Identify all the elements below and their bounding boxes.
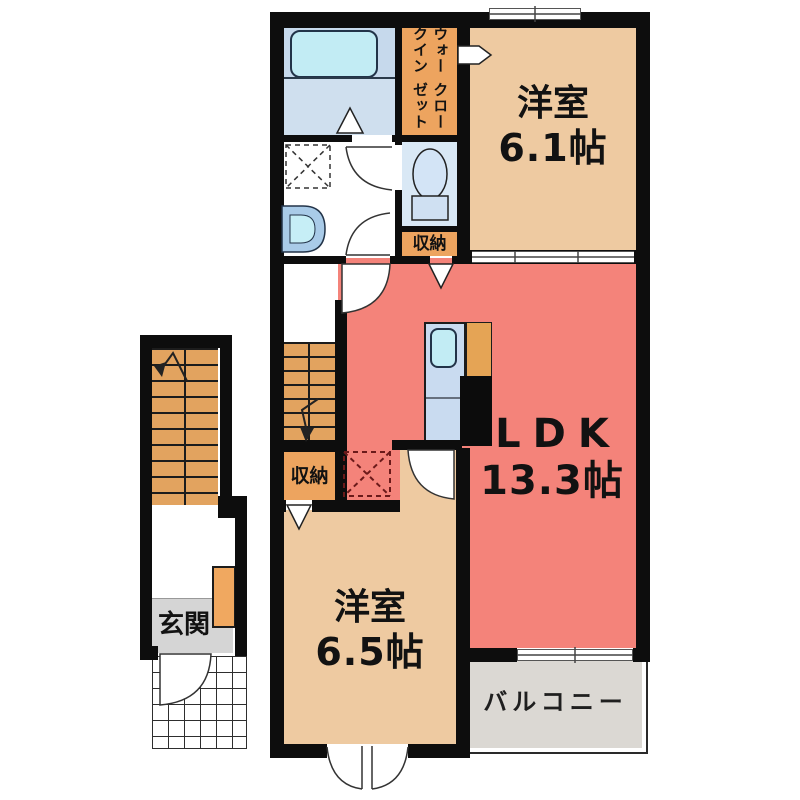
bedroom-bottom-name: 洋室: [334, 587, 406, 629]
wall: [270, 744, 327, 758]
walk-in-closet-line2: クローゼット: [410, 78, 451, 134]
kitchen-side-counter: [466, 322, 492, 378]
ldk-name: LDK: [483, 411, 621, 458]
wall: [140, 335, 232, 348]
wall: [270, 12, 284, 758]
entrance-label: 玄関: [152, 600, 216, 650]
wall: [457, 12, 470, 264]
bedroom-top-name: 洋室: [517, 83, 589, 125]
wall: [402, 135, 457, 142]
balcony-label: バルコニー: [469, 682, 642, 722]
kitchen-sink: [430, 328, 457, 368]
storage-upper-label: 収納: [402, 232, 457, 256]
internal-stairs-centerline: [308, 342, 310, 440]
bathroom-divider-line: [284, 77, 395, 79]
bathtub: [290, 30, 378, 78]
wall: [395, 12, 402, 145]
storage-lower-label: 収納: [284, 452, 335, 500]
bedroom-top-size: 6.1帖: [498, 126, 607, 171]
french-doors: [327, 746, 408, 789]
walk-in-closet-line1: ウォークイン: [410, 22, 451, 78]
wall: [220, 335, 232, 508]
wall: [335, 300, 347, 500]
wall: [140, 335, 152, 660]
bedroom-bottom-door-nook: [400, 448, 456, 510]
sliding-partition-bedroom-ldk: [472, 251, 634, 263]
floor-plan: 洋室 6.1帖 LDK 13.3帖 洋室 6.5帖 バルコニー 玄関 収納 収納…: [0, 0, 800, 800]
wall: [633, 648, 650, 662]
bedroom-bottom-label: 洋室 6.5帖: [284, 566, 456, 696]
wall: [284, 256, 346, 264]
washbasin: [282, 206, 325, 252]
washroom-door-arcs: [346, 147, 392, 255]
wall: [395, 190, 402, 258]
ldk-label: LDK 13.3帖: [458, 402, 646, 514]
wall: [392, 440, 462, 450]
toilet-room-floor: [402, 142, 457, 226]
outdoor-stairs-centerline: [184, 348, 186, 505]
walk-in-closet-label: ウォークイン クローゼット: [404, 22, 456, 134]
wall: [284, 135, 352, 142]
window-top: [489, 8, 581, 20]
bedroom-top-label: 洋室 6.1帖: [470, 62, 636, 192]
washing-machine-space: [286, 145, 330, 188]
wall: [312, 500, 400, 512]
bedroom-bottom-size: 6.5帖: [315, 630, 424, 675]
wall: [392, 135, 402, 142]
window-balcony: [517, 649, 633, 661]
wall: [452, 256, 470, 264]
ldk-size: 13.3帖: [480, 458, 624, 505]
wall: [390, 256, 430, 264]
kitchen-counter-divider: [426, 397, 464, 399]
wall: [284, 440, 347, 452]
wall: [270, 500, 286, 512]
entrance-porch-tiles: [152, 656, 247, 749]
wall: [636, 12, 650, 662]
wall: [235, 508, 247, 656]
